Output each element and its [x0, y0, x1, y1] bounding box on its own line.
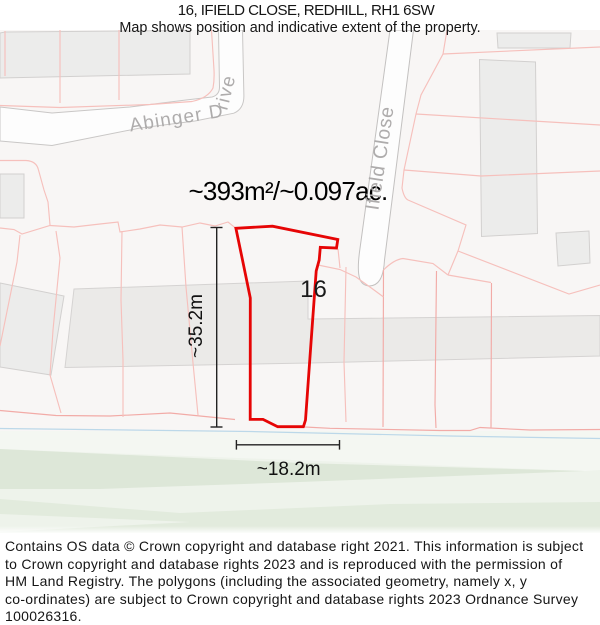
svg-text:~393m²/~0.097ac.: ~393m²/~0.097ac. [188, 176, 387, 206]
svg-text:~35.2m: ~35.2m [186, 294, 207, 358]
svg-text:~18.2m: ~18.2m [257, 459, 321, 480]
svg-text:16: 16 [300, 276, 327, 303]
